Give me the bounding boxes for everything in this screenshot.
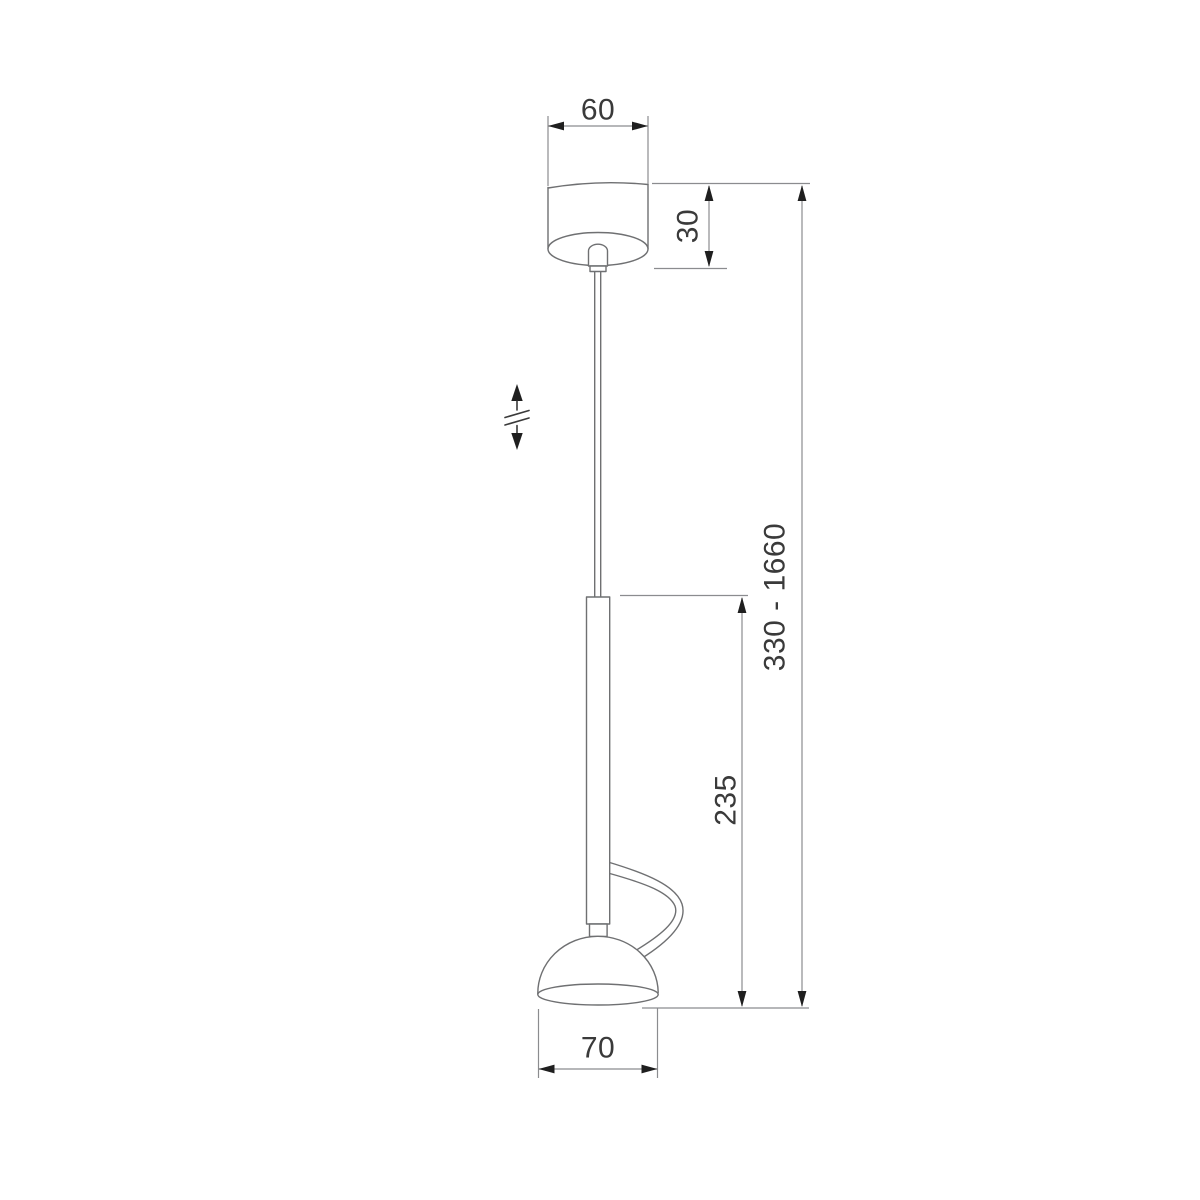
dim-canopy-width: 60 <box>548 94 648 187</box>
dim-shade-width-label: 70 <box>581 1032 615 1065</box>
stem-tube <box>587 597 610 924</box>
canopy-top-edge <box>548 183 648 188</box>
cable-gland <box>589 244 608 266</box>
dim-canopy-height-label: 30 <box>672 209 705 243</box>
dim-shade-width: 70 <box>539 1008 658 1078</box>
ceiling-canopy <box>548 183 648 272</box>
dim30-arrow-down <box>705 251 714 267</box>
adjust-arrow-up <box>511 384 522 401</box>
dim-canopy-width-label: 60 <box>581 94 615 127</box>
dim60-arrow-right <box>632 122 648 131</box>
pendant-lamp-dimension-drawing: 60 30 330 - 1660 235 <box>0 0 1200 1200</box>
dim-canopy-height: 30 <box>652 184 810 269</box>
adjust-break-line-1 <box>505 411 529 418</box>
dim330-arrow-up <box>798 185 807 201</box>
lamp-stem <box>587 597 610 937</box>
height-adjust-double-arrow-icon <box>505 384 529 450</box>
technical-drawing-canvas: 60 30 330 - 1660 235 <box>0 0 1200 1200</box>
adjust-arrow-down <box>511 433 522 450</box>
dim330-arrow-down <box>798 991 807 1007</box>
dim70-arrow-left <box>539 1065 555 1074</box>
dim60-arrow-left <box>548 122 564 131</box>
dim-fixture-height: 235 <box>620 596 748 1008</box>
shade-bottom-rim <box>538 984 658 1005</box>
cable-gland-collar <box>590 266 606 272</box>
dim30-arrow-up <box>705 185 714 201</box>
dim70-arrow-right <box>642 1065 658 1074</box>
stem-clamp <box>590 924 608 937</box>
dim-suspension-height: 330 - 1660 <box>642 185 809 1008</box>
dim235-arrow-down <box>738 991 747 1007</box>
dim-suspension-height-label: 330 - 1660 <box>759 523 792 671</box>
suspension-cable <box>595 270 601 597</box>
dim-fixture-height-label: 235 <box>710 774 743 826</box>
lamp-shade <box>538 936 659 1005</box>
adjust-break-line-2 <box>505 418 529 425</box>
dim235-arrow-up <box>738 597 747 613</box>
